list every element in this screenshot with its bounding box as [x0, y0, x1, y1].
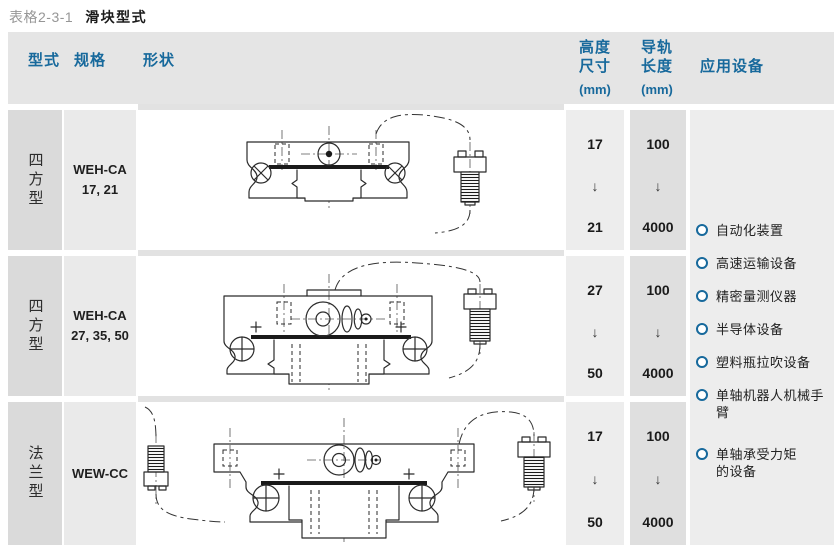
slider-block-front-view: [224, 290, 432, 384]
bullet-circle-icon: [696, 356, 708, 368]
header-spec: 规格: [74, 49, 106, 70]
bullet-circle-icon: [696, 323, 708, 335]
height-min: 17: [587, 136, 603, 152]
header-shape: 形状: [143, 49, 175, 70]
range-arrow-icon: ↓: [655, 324, 662, 340]
flange-slider-drawing: [138, 402, 564, 545]
slider-type-table: 型式 规格 形状 高度 尺寸 (mm) 导轨 长度 (mm) 应用设备 四方型 …: [8, 32, 834, 545]
range-arrow-icon: ↓: [592, 178, 599, 194]
application-item: 高速运输设备: [696, 255, 832, 272]
height-range-cell: 27 ↓ 50: [566, 256, 624, 396]
bullet-circle-icon: [696, 257, 708, 269]
catalog-page: 表格2-3-1滑块型式 型式 规格 形状 高度 尺寸 (mm) 导轨 长度 (m…: [0, 0, 838, 552]
application-label: 单轴承受力矩 的设备: [716, 446, 797, 480]
square-slider-drawing-17-21: [138, 110, 564, 250]
spec-cell: WEH-CA 27, 35, 50: [64, 256, 136, 396]
height-min: 17: [587, 428, 603, 444]
seal-strip: [251, 335, 411, 339]
bullet-circle-icon: [696, 290, 708, 302]
range-arrow-icon: ↓: [655, 178, 662, 194]
application-label: 塑料瓶拉吹设备: [716, 354, 811, 371]
type-label: 四方型: [25, 298, 46, 355]
application-item: 单轴承受力矩 的设备: [696, 446, 832, 480]
application-item: 塑料瓶拉吹设备: [696, 354, 832, 371]
rail-cross-section: [292, 170, 366, 201]
header-rail-length: 导轨 长度 (mm): [628, 38, 686, 97]
slider-block-front-view: [247, 142, 409, 201]
seal-strip: [269, 165, 389, 169]
range-arrow-icon: ↓: [592, 324, 599, 340]
height-range-cell: 17 ↓ 50: [566, 402, 624, 545]
shape-cell: [138, 256, 564, 396]
height-max: 21: [587, 219, 603, 235]
spec-cell: WEW-CC: [64, 402, 136, 545]
application-item: 单轴机器人机械手 臂: [696, 387, 832, 421]
bullet-circle-icon: [696, 224, 708, 236]
seal-strip: [261, 481, 427, 485]
type-label: 四方型: [25, 152, 46, 209]
shape-cell: [138, 402, 564, 545]
height-range-cell: 17 ↓ 21: [566, 110, 624, 250]
header-rail-label: 导轨 长度: [641, 38, 673, 76]
table-name: 滑块型式: [85, 9, 147, 25]
header-applications: 应用设备: [700, 55, 764, 76]
rail-max: 4000: [642, 514, 673, 530]
application-label: 自动化装置: [716, 222, 784, 239]
rail-cross-section: [289, 486, 399, 538]
rail-range-cell: 100 ↓ 4000: [630, 402, 686, 545]
spec-cell: WEH-CA 17, 21: [64, 110, 136, 250]
rail-min: 100: [646, 428, 669, 444]
shape-cell: [138, 110, 564, 250]
header-height-unit: (mm): [579, 82, 611, 97]
table-number: 表格2-3-1: [9, 9, 73, 25]
applications-list: 自动化装置 高速运输设备 精密量测仪器 半导体设备 塑料瓶拉吹设备: [696, 222, 832, 480]
square-slider-drawing-27-35-50: [138, 256, 564, 396]
rail-max: 4000: [642, 219, 673, 235]
type-cell: 四方型: [8, 110, 62, 250]
rail-range-cell: 100 ↓ 4000: [630, 110, 686, 250]
table-title: 表格2-3-1滑块型式: [9, 7, 147, 27]
rail-cross-section: [268, 340, 390, 384]
application-label: 半导体设备: [716, 321, 784, 338]
application-label: 单轴机器人机械手 臂: [716, 387, 824, 421]
table-header: 型式 规格 形状 高度 尺寸 (mm) 导轨 长度 (mm) 应用设备: [8, 32, 834, 104]
application-label: 高速运输设备: [716, 255, 797, 272]
application-label: 精密量测仪器: [716, 288, 797, 305]
bullet-circle-icon: [696, 448, 708, 460]
range-arrow-icon: ↓: [592, 471, 599, 487]
phantom-leader-line: [376, 114, 470, 233]
applications-panel: 自动化装置 高速运输设备 精密量测仪器 半导体设备 塑料瓶拉吹设备: [690, 110, 834, 545]
type-cell: 四方型: [8, 256, 62, 396]
rail-max: 4000: [642, 365, 673, 381]
header-type: 型式: [28, 49, 60, 70]
application-item: 自动化装置: [696, 222, 832, 239]
rail-min: 100: [646, 282, 669, 298]
rail-range-cell: 100 ↓ 4000: [630, 256, 686, 396]
type-label: 法兰型: [25, 445, 46, 502]
header-height-label: 高度 尺寸: [579, 38, 611, 76]
application-item: 半导体设备: [696, 321, 832, 338]
header-rail-unit: (mm): [641, 82, 673, 97]
bullet-circle-icon: [696, 389, 708, 401]
height-min: 27: [587, 282, 603, 298]
type-cell: 法兰型: [8, 402, 62, 545]
range-arrow-icon: ↓: [655, 471, 662, 487]
height-max: 50: [587, 514, 603, 530]
height-max: 50: [587, 365, 603, 381]
rail-min: 100: [646, 136, 669, 152]
header-height: 高度 尺寸 (mm): [566, 38, 624, 97]
application-item: 精密量测仪器: [696, 288, 832, 305]
cap-screw-icon-left: [144, 446, 168, 490]
